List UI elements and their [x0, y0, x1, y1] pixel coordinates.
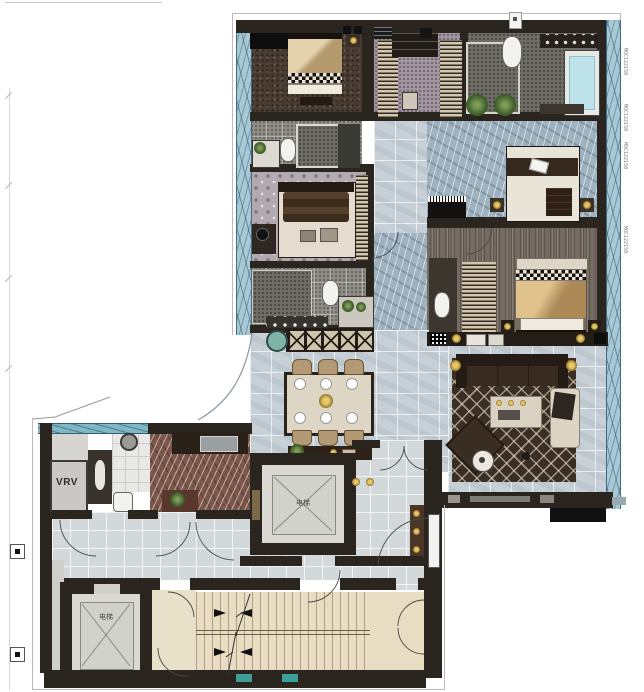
wall	[352, 440, 380, 448]
cabinet-x-panel	[323, 330, 339, 351]
decor	[413, 546, 420, 553]
wall	[196, 510, 252, 519]
towel	[95, 460, 105, 490]
wardrobe	[462, 262, 496, 334]
teal-inset	[282, 674, 298, 682]
bed-duvet	[288, 39, 342, 73]
private-elevator-label: 电梯	[272, 498, 334, 508]
bathtub-water	[569, 56, 595, 110]
bed-pillow-stack	[546, 188, 572, 216]
cooktop	[120, 433, 138, 451]
wall-light	[366, 478, 374, 486]
floor-lamp	[566, 360, 577, 371]
bed-items	[300, 230, 316, 242]
lobby-floor	[152, 590, 196, 674]
tv-decor	[448, 495, 460, 503]
wall	[240, 556, 302, 566]
stool	[402, 92, 418, 110]
pillow-stack	[466, 334, 486, 346]
bed-pillows	[283, 192, 349, 222]
plant	[466, 94, 488, 116]
bed-headboard	[278, 182, 354, 192]
plant	[494, 94, 516, 116]
bedroom1-dark-cabinet	[250, 33, 288, 49]
chaise-throw	[551, 392, 575, 421]
bed-checker-band	[288, 73, 342, 84]
decor	[576, 334, 585, 343]
dining-chair	[344, 359, 364, 375]
cabinet-x-panel	[357, 330, 373, 351]
decor	[413, 528, 420, 535]
awning-diagonal-line	[33, 397, 110, 419]
wardrobe	[356, 175, 368, 261]
top-border-line	[5, 2, 162, 3]
cabinet-x-panel	[340, 330, 356, 351]
bath-counter	[338, 124, 360, 168]
table-tray	[498, 410, 520, 420]
bed-items	[320, 228, 338, 242]
curtain-wall-right	[606, 20, 621, 509]
speaker-box	[430, 333, 446, 344]
tv-decor	[540, 495, 554, 503]
vrv-room-label: VRV	[46, 477, 88, 489]
floor-plan-canvas: VRV 电梯 电梯 MQC122150 MQC122150 MQC122150 …	[0, 0, 644, 692]
bed-duvet	[516, 281, 586, 318]
lamp	[350, 37, 357, 44]
sofa-back	[460, 354, 564, 366]
stair-floor	[196, 592, 370, 674]
window-code-tag: MQC122150	[621, 142, 628, 184]
lamp	[583, 201, 591, 209]
wardrobe	[440, 40, 462, 118]
plate	[346, 412, 358, 424]
stair-landing	[370, 592, 426, 674]
bed-pillow-stack	[514, 188, 540, 216]
bed-foot	[288, 84, 342, 94]
plate	[346, 378, 358, 390]
column-marker	[10, 544, 25, 559]
plate	[320, 378, 332, 390]
tv-unit	[470, 496, 530, 502]
column-marker-dot	[15, 549, 20, 554]
section-marker-dot	[513, 17, 517, 21]
stair-mid-line	[196, 634, 370, 635]
floor-item	[522, 452, 530, 460]
curtain-wall-curve	[198, 334, 252, 420]
lamp	[591, 323, 598, 330]
vanity-counter	[540, 34, 598, 48]
section-marker	[509, 12, 522, 29]
pillow-stack	[488, 334, 504, 346]
left-dimension-line	[9, 88, 10, 690]
table-decor	[520, 400, 526, 406]
window-code-tag: MQC122150	[621, 226, 628, 268]
decor	[452, 334, 461, 343]
toilet	[113, 492, 133, 512]
cabinet-x-panel	[306, 330, 322, 351]
wall-light	[352, 478, 360, 486]
flowers	[342, 300, 354, 312]
curtain-wall-left	[236, 20, 252, 335]
ceiling-fixture	[343, 26, 351, 34]
dining-chair	[292, 359, 312, 375]
kitchen-window-glass	[38, 423, 148, 434]
plate	[294, 412, 306, 424]
sofa-seat	[466, 366, 558, 386]
toilet	[502, 36, 522, 68]
bed-foot	[516, 258, 588, 270]
wall-block	[550, 508, 606, 522]
floor-lamp	[450, 360, 461, 371]
wall	[250, 261, 374, 268]
sofa-arm	[558, 354, 568, 388]
sofa-arm	[456, 354, 466, 388]
public-elevator-label: 电梯	[80, 612, 132, 622]
wall	[52, 510, 92, 519]
dining-chair	[318, 359, 338, 375]
piano-keys	[428, 196, 466, 202]
bath-counter	[266, 316, 328, 328]
wall	[340, 578, 396, 590]
outer-offset-line-left	[232, 13, 233, 335]
wall	[190, 578, 300, 590]
flowers	[356, 302, 366, 312]
cabinet-x-panel	[289, 330, 305, 351]
candelabra	[319, 394, 333, 408]
outer-offset-line-top	[232, 13, 621, 14]
wall	[362, 33, 374, 120]
decor	[413, 510, 420, 517]
outer-offset-line-left-lower	[32, 418, 33, 689]
side-table-decor	[479, 457, 485, 463]
toilet	[280, 138, 296, 162]
wall	[335, 556, 425, 566]
ceiling-fixture	[420, 28, 432, 38]
inner-hall-floor	[374, 118, 427, 233]
wall	[418, 578, 426, 590]
door-leaf	[428, 514, 440, 568]
decor-box	[594, 333, 606, 344]
column-marker-dot	[15, 652, 20, 657]
ceiling-fixture	[354, 26, 362, 34]
plant	[170, 492, 185, 507]
shower	[296, 124, 340, 168]
plate	[294, 378, 306, 390]
bench	[300, 97, 332, 105]
outer-offset-line-right-lower	[444, 505, 445, 690]
plate	[320, 412, 332, 424]
ac-grille	[374, 27, 392, 39]
table-decor	[508, 400, 514, 406]
window-code-tag: MQC122150	[621, 104, 628, 146]
toilet	[322, 280, 339, 306]
table-decor	[496, 400, 502, 406]
gray-tag	[612, 497, 626, 505]
utility-column	[88, 450, 112, 504]
outer-offset-line-bottom	[32, 689, 444, 690]
basin-bowl	[266, 330, 288, 352]
bed-checker-band	[516, 270, 586, 281]
bath-bench	[540, 104, 584, 114]
elevator-door-gap	[94, 584, 120, 594]
wall	[128, 510, 158, 519]
plant	[254, 142, 266, 154]
elevator-call-panel	[252, 490, 260, 520]
column-marker	[10, 647, 25, 662]
lamp	[493, 201, 501, 209]
kitchen-sink	[200, 436, 238, 452]
wall-bottom	[44, 670, 426, 688]
teal-inset	[236, 674, 252, 682]
window-code-tag: MQC122150	[621, 48, 628, 90]
toilet	[434, 292, 450, 318]
dining-chair	[318, 430, 338, 446]
lamp	[504, 323, 511, 330]
lamp	[256, 228, 269, 241]
stair-mid-line	[196, 630, 370, 631]
